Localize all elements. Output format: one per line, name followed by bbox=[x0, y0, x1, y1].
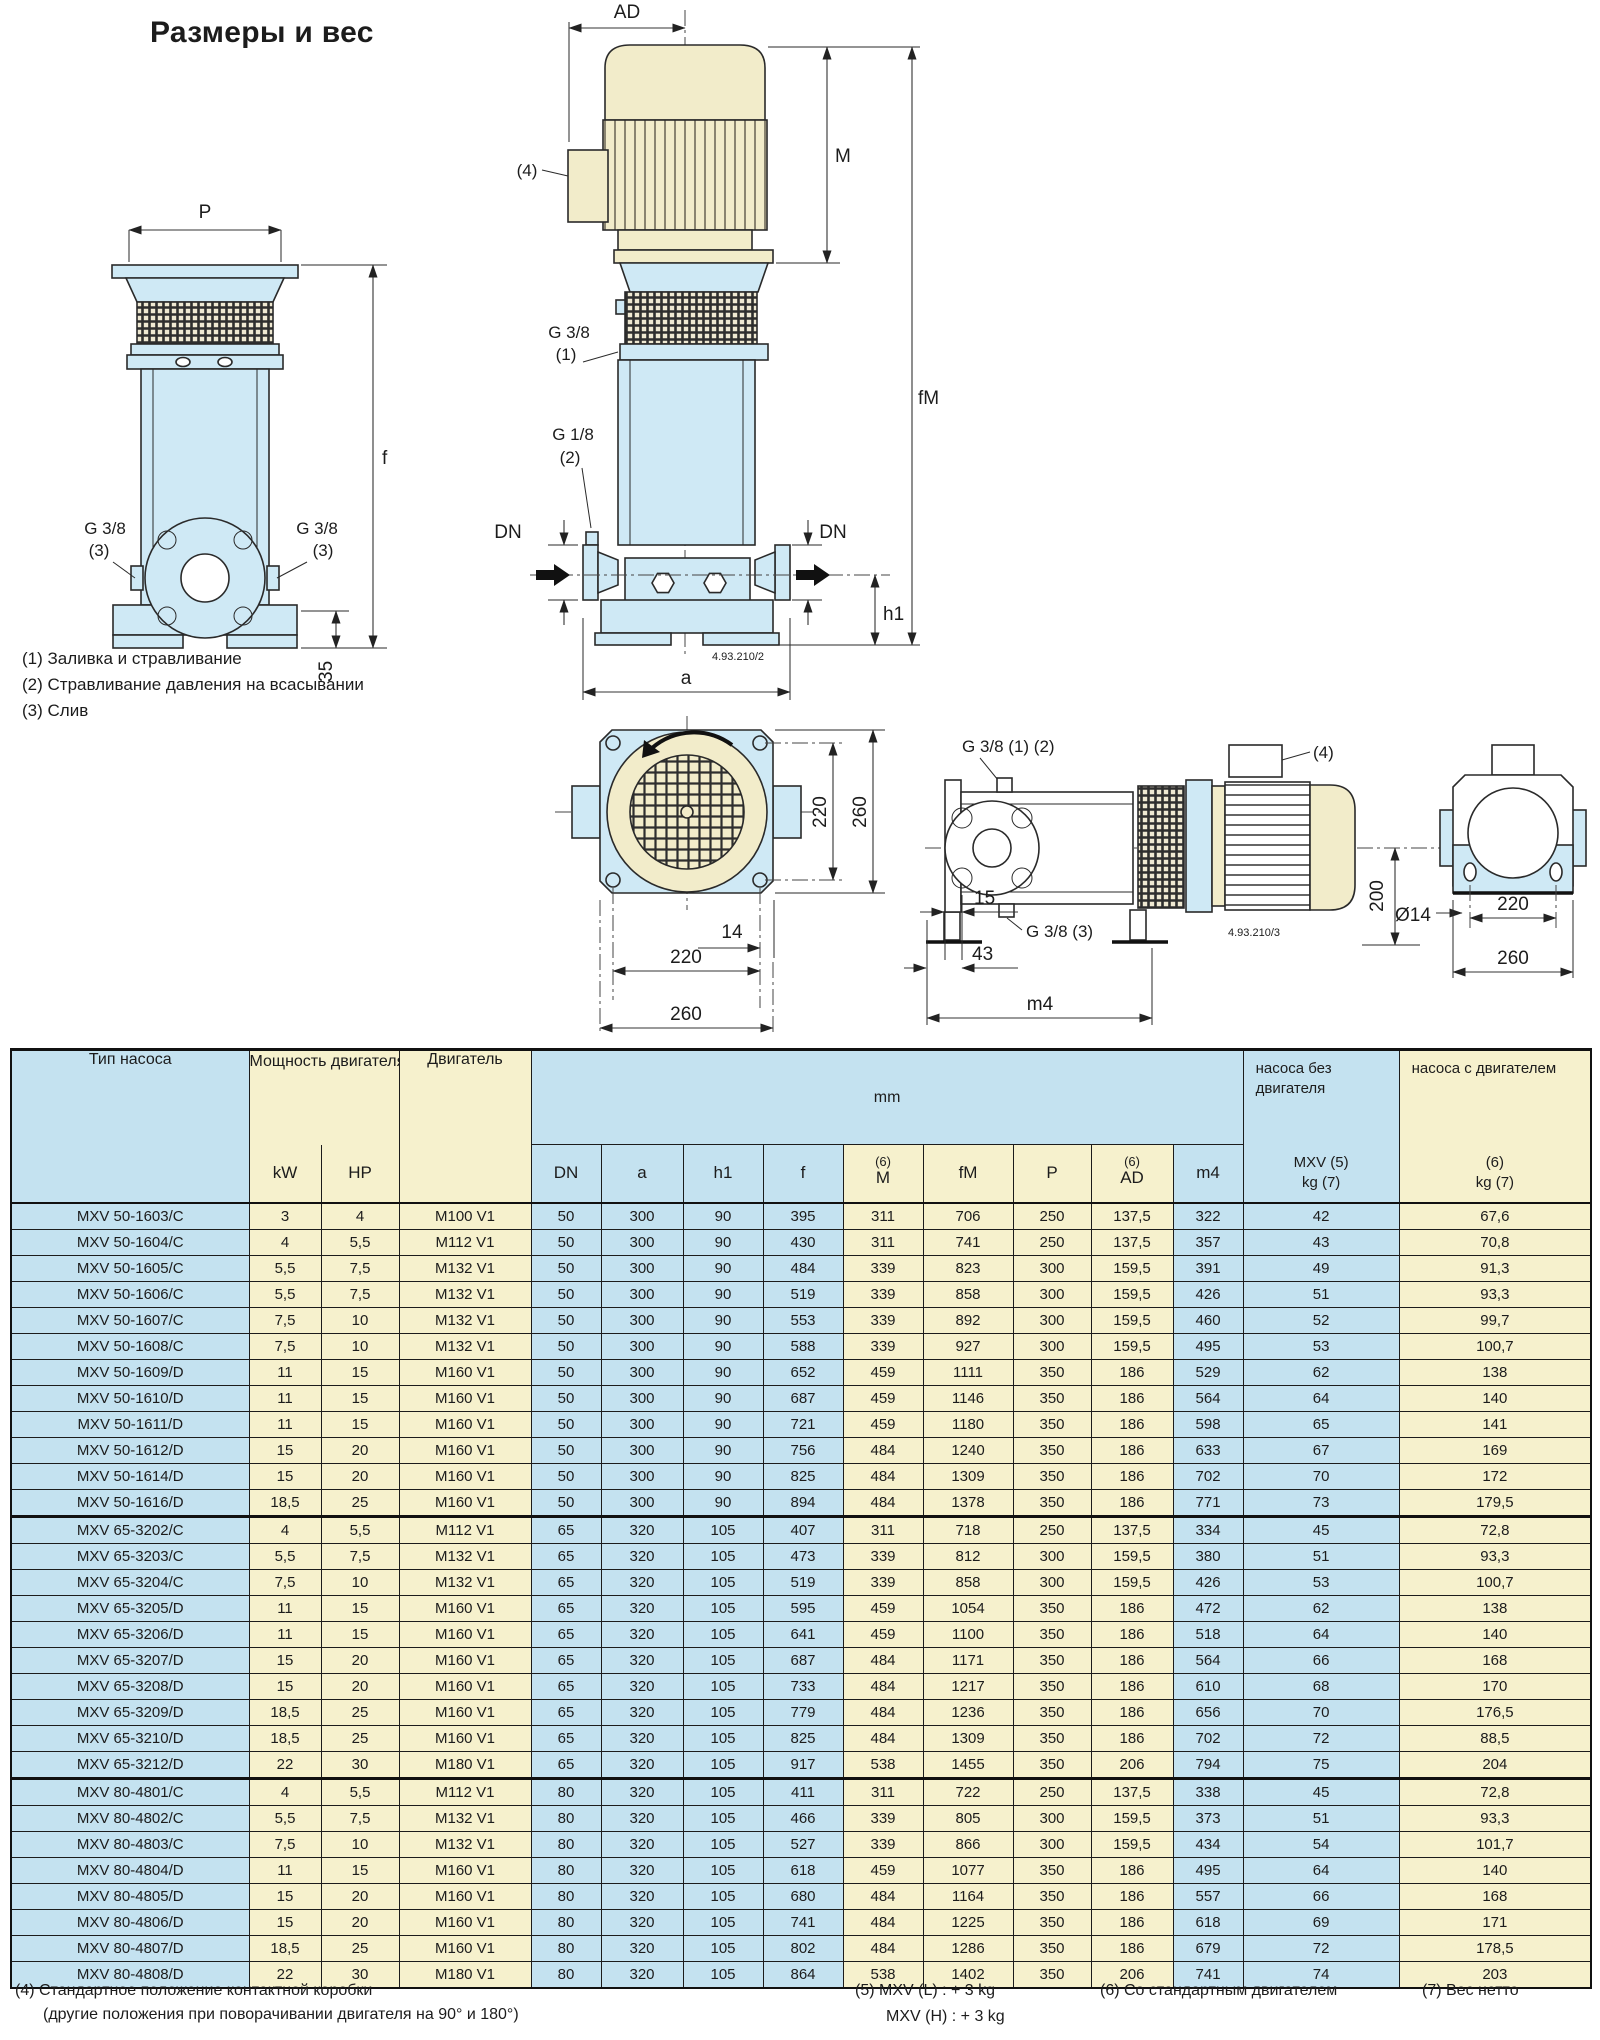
cell-a: 320 bbox=[601, 1621, 683, 1647]
cell-m4: 460 bbox=[1173, 1307, 1243, 1333]
cell-kg1: 45 bbox=[1243, 1778, 1399, 1805]
cell-m: 484 bbox=[843, 1725, 923, 1751]
dim-M: M bbox=[768, 47, 920, 263]
cell-hp: 20 bbox=[321, 1647, 399, 1673]
cell-m: 459 bbox=[843, 1621, 923, 1647]
cell-m4: 679 bbox=[1173, 1935, 1243, 1961]
label-g38-3-right: G 3/8 (3) bbox=[277, 519, 338, 578]
cell-h1: 105 bbox=[683, 1725, 763, 1751]
table-row: MXV 50-1616/D18,525M160 V150300908944841… bbox=[11, 1489, 1591, 1516]
pump-body bbox=[112, 265, 298, 648]
table-row: MXV 65-3203/C5,57,5M132 V165320105473339… bbox=[11, 1543, 1591, 1569]
cell-h1: 105 bbox=[683, 1831, 763, 1857]
cell-a: 320 bbox=[601, 1961, 683, 1988]
cell-kg2: 70,8 bbox=[1399, 1229, 1591, 1255]
cell-fm: 1217 bbox=[923, 1673, 1013, 1699]
cell-type: MXV 65-3202/C bbox=[11, 1516, 249, 1543]
cell-fm: 1236 bbox=[923, 1699, 1013, 1725]
cell-fm: 1054 bbox=[923, 1595, 1013, 1621]
terminal-box-silhouette bbox=[1492, 745, 1534, 775]
cell-kg1: 51 bbox=[1243, 1543, 1399, 1569]
cell-m: 484 bbox=[843, 1673, 923, 1699]
cell-kw: 5,5 bbox=[249, 1281, 321, 1307]
svg-text:220: 220 bbox=[810, 796, 831, 828]
cell-type: MXV 80-4807/D bbox=[11, 1935, 249, 1961]
cell-p: 250 bbox=[1013, 1203, 1091, 1230]
cell-ad: 186 bbox=[1091, 1359, 1173, 1385]
svg-text:m4: m4 bbox=[1027, 994, 1054, 1015]
bolt-hole bbox=[606, 873, 620, 887]
cell-hp: 25 bbox=[321, 1699, 399, 1725]
svg-text:260: 260 bbox=[670, 1004, 702, 1025]
cell-type: MXV 50-1606/C bbox=[11, 1281, 249, 1307]
cell-m4: 426 bbox=[1173, 1281, 1243, 1307]
cell-p: 350 bbox=[1013, 1359, 1091, 1385]
motor-end-cap bbox=[1310, 785, 1355, 910]
header-fm: fM bbox=[923, 1145, 1013, 1203]
svg-text:DN: DN bbox=[819, 522, 846, 543]
cell-fm: 1240 bbox=[923, 1437, 1013, 1463]
cell-kw: 4 bbox=[249, 1229, 321, 1255]
cell-f: 395 bbox=[763, 1203, 843, 1230]
cell-fm: 1286 bbox=[923, 1935, 1013, 1961]
cell-a: 320 bbox=[601, 1543, 683, 1569]
cell-p: 350 bbox=[1013, 1909, 1091, 1935]
cell-motor: M112 V1 bbox=[399, 1229, 531, 1255]
cell-dn: 65 bbox=[531, 1647, 601, 1673]
cell-ad: 186 bbox=[1091, 1725, 1173, 1751]
cell-h1: 90 bbox=[683, 1307, 763, 1333]
cell-p: 300 bbox=[1013, 1333, 1091, 1359]
bolt-hole bbox=[753, 873, 767, 887]
footnote-4-line2: (другие положения при поворачивании двиг… bbox=[43, 2006, 519, 2024]
cell-fm: 722 bbox=[923, 1778, 1013, 1805]
cell-m: 339 bbox=[843, 1281, 923, 1307]
cell-f: 741 bbox=[763, 1909, 843, 1935]
cell-hp: 15 bbox=[321, 1359, 399, 1385]
cell-kg2: 100,7 bbox=[1399, 1333, 1591, 1359]
cell-a: 320 bbox=[601, 1673, 683, 1699]
cell-m: 484 bbox=[843, 1489, 923, 1516]
header-m: (6)M bbox=[843, 1145, 923, 1203]
cell-kg1: 64 bbox=[1243, 1621, 1399, 1647]
cell-m4: 564 bbox=[1173, 1385, 1243, 1411]
cell-kg1: 67 bbox=[1243, 1437, 1399, 1463]
cell-type: MXV 65-3206/D bbox=[11, 1621, 249, 1647]
svg-text:220: 220 bbox=[670, 947, 702, 968]
cell-ad: 137,5 bbox=[1091, 1778, 1173, 1805]
cell-f: 473 bbox=[763, 1543, 843, 1569]
cell-hp: 7,5 bbox=[321, 1543, 399, 1569]
cell-kg1: 72 bbox=[1243, 1935, 1399, 1961]
cell-dn: 50 bbox=[531, 1489, 601, 1516]
cell-m: 339 bbox=[843, 1543, 923, 1569]
cell-h1: 105 bbox=[683, 1699, 763, 1725]
cell-hp: 15 bbox=[321, 1857, 399, 1883]
table-row: MXV 50-1612/D1520M160 V15030090756484124… bbox=[11, 1437, 1591, 1463]
cell-h1: 90 bbox=[683, 1203, 763, 1230]
cell-fm: 812 bbox=[923, 1543, 1013, 1569]
cell-ad: 186 bbox=[1091, 1673, 1173, 1699]
header-motor-power: Мощность двигателя bbox=[249, 1050, 399, 1145]
cell-ad: 159,5 bbox=[1091, 1255, 1173, 1281]
cell-p: 300 bbox=[1013, 1805, 1091, 1831]
cell-fm: 866 bbox=[923, 1831, 1013, 1857]
cell-motor: M160 V1 bbox=[399, 1489, 531, 1516]
cell-motor: M180 V1 bbox=[399, 1961, 531, 1988]
cell-p: 250 bbox=[1013, 1229, 1091, 1255]
cell-kg1: 72 bbox=[1243, 1725, 1399, 1751]
cell-type: MXV 80-4805/D bbox=[11, 1883, 249, 1909]
cell-type: MXV 80-4801/C bbox=[11, 1778, 249, 1805]
cell-kw: 3 bbox=[249, 1203, 321, 1230]
cell-dn: 65 bbox=[531, 1725, 601, 1751]
cell-h1: 90 bbox=[683, 1489, 763, 1516]
cell-f: 407 bbox=[763, 1516, 843, 1543]
cell-ad: 206 bbox=[1091, 1751, 1173, 1778]
cell-dn: 50 bbox=[531, 1463, 601, 1489]
cell-hp: 10 bbox=[321, 1307, 399, 1333]
cell-hp: 20 bbox=[321, 1463, 399, 1489]
cell-p: 350 bbox=[1013, 1857, 1091, 1883]
hex-bolt bbox=[652, 573, 674, 592]
label-g38-12: G 3/8 (1) (2) bbox=[962, 737, 1055, 780]
cell-kg2: 171 bbox=[1399, 1909, 1591, 1935]
cell-h1: 90 bbox=[683, 1281, 763, 1307]
cell-hp: 5,5 bbox=[321, 1778, 399, 1805]
cell-hp: 30 bbox=[321, 1751, 399, 1778]
header-h1: h1 bbox=[683, 1145, 763, 1203]
cell-ad: 159,5 bbox=[1091, 1543, 1173, 1569]
cell-hp: 25 bbox=[321, 1489, 399, 1516]
cell-fm: 805 bbox=[923, 1805, 1013, 1831]
cell-m4: 557 bbox=[1173, 1883, 1243, 1909]
cell-m4: 564 bbox=[1173, 1647, 1243, 1673]
cell-kw: 18,5 bbox=[249, 1725, 321, 1751]
cell-kg1: 65 bbox=[1243, 1411, 1399, 1437]
cell-fm: 858 bbox=[923, 1569, 1013, 1595]
cell-f: 652 bbox=[763, 1359, 843, 1385]
cell-hp: 10 bbox=[321, 1569, 399, 1595]
label-g38-3: G 3/8 (3) bbox=[1007, 918, 1093, 941]
svg-text:200: 200 bbox=[1367, 880, 1388, 912]
end-view bbox=[1440, 745, 1586, 893]
fan-screen bbox=[137, 302, 273, 344]
svg-text:(2): (2) bbox=[560, 448, 581, 467]
cell-fm: 1309 bbox=[923, 1725, 1013, 1751]
cell-f: 733 bbox=[763, 1673, 843, 1699]
cell-fm: 1146 bbox=[923, 1385, 1013, 1411]
cell-motor: M160 V1 bbox=[399, 1935, 531, 1961]
drawing-code: 4.93.210/3 bbox=[1228, 927, 1280, 939]
cell-f: 641 bbox=[763, 1621, 843, 1647]
cell-p: 300 bbox=[1013, 1307, 1091, 1333]
svg-text:fM: fM bbox=[918, 388, 939, 409]
cell-kg2: 72,8 bbox=[1399, 1516, 1591, 1543]
cell-m4: 633 bbox=[1173, 1437, 1243, 1463]
cell-motor: M160 V1 bbox=[399, 1909, 531, 1935]
side-port-left bbox=[572, 786, 600, 838]
cell-fm: 823 bbox=[923, 1255, 1013, 1281]
svg-text:G 1/8: G 1/8 bbox=[552, 425, 594, 444]
cell-h1: 105 bbox=[683, 1647, 763, 1673]
cell-ad: 159,5 bbox=[1091, 1307, 1173, 1333]
cell-kw: 18,5 bbox=[249, 1935, 321, 1961]
cell-kw: 11 bbox=[249, 1857, 321, 1883]
table-row: MXV 65-3205/D1115M160 V16532010559545910… bbox=[11, 1595, 1591, 1621]
cell-a: 300 bbox=[601, 1463, 683, 1489]
cell-h1: 105 bbox=[683, 1673, 763, 1699]
cell-ad: 186 bbox=[1091, 1385, 1173, 1411]
cell-p: 350 bbox=[1013, 1437, 1091, 1463]
bolt-hole bbox=[606, 736, 620, 750]
cell-hp: 7,5 bbox=[321, 1281, 399, 1307]
cell-type: MXV 50-1616/D bbox=[11, 1489, 249, 1516]
cell-m4: 380 bbox=[1173, 1543, 1243, 1569]
cell-kg1: 66 bbox=[1243, 1883, 1399, 1909]
table-row: MXV 65-3210/D18,525M160 V165320105825484… bbox=[11, 1725, 1591, 1751]
cell-hp: 20 bbox=[321, 1437, 399, 1463]
cell-m4: 357 bbox=[1173, 1229, 1243, 1255]
cell-p: 350 bbox=[1013, 1489, 1091, 1516]
flow-arrow-icon bbox=[796, 564, 830, 586]
cell-kw: 5,5 bbox=[249, 1543, 321, 1569]
cell-m: 339 bbox=[843, 1831, 923, 1857]
cell-type: MXV 50-1605/C bbox=[11, 1255, 249, 1281]
cell-h1: 90 bbox=[683, 1255, 763, 1281]
footnote-5-line2: MXV (H) : + 3 kg bbox=[886, 2008, 1005, 2026]
cell-f: 917 bbox=[763, 1751, 843, 1778]
cell-m: 339 bbox=[843, 1333, 923, 1359]
cell-type: MXV 65-3204/C bbox=[11, 1569, 249, 1595]
cell-m: 459 bbox=[843, 1385, 923, 1411]
cell-a: 320 bbox=[601, 1595, 683, 1621]
cell-m: 311 bbox=[843, 1778, 923, 1805]
footnote-6: (6) Со стандартным двигателем bbox=[1100, 1982, 1337, 2000]
cell-motor: M132 V1 bbox=[399, 1255, 531, 1281]
cell-p: 300 bbox=[1013, 1831, 1091, 1857]
cell-f: 595 bbox=[763, 1595, 843, 1621]
cell-kw: 15 bbox=[249, 1909, 321, 1935]
cell-a: 320 bbox=[601, 1935, 683, 1961]
cell-motor: M160 V1 bbox=[399, 1595, 531, 1621]
cell-dn: 80 bbox=[531, 1831, 601, 1857]
cell-kg2: 172 bbox=[1399, 1463, 1591, 1489]
cell-type: MXV 50-1611/D bbox=[11, 1411, 249, 1437]
cell-dn: 65 bbox=[531, 1543, 601, 1569]
cell-m4: 495 bbox=[1173, 1857, 1243, 1883]
pump-group-1: MXV 50-1603/C34M100 V1503009039531170625… bbox=[11, 1203, 1591, 1517]
cell-kg1: 52 bbox=[1243, 1307, 1399, 1333]
cell-dn: 50 bbox=[531, 1229, 601, 1255]
cell-kg2: 93,3 bbox=[1399, 1281, 1591, 1307]
cell-type: MXV 65-3209/D bbox=[11, 1699, 249, 1725]
cell-h1: 105 bbox=[683, 1751, 763, 1778]
cell-h1: 105 bbox=[683, 1961, 763, 1988]
cell-dn: 80 bbox=[531, 1961, 601, 1988]
table-row: MXV 50-1605/C5,57,5M132 V150300904843398… bbox=[11, 1255, 1591, 1281]
vent-port bbox=[616, 300, 625, 314]
header-weight-without-motor: насоса без двигателя MXV (5) kg (7) bbox=[1243, 1050, 1399, 1203]
cell-a: 300 bbox=[601, 1333, 683, 1359]
dim-43: 43 bbox=[904, 920, 1018, 1025]
table-row: MXV 80-4807/D18,525M160 V180320105802484… bbox=[11, 1935, 1591, 1961]
cell-dn: 65 bbox=[531, 1673, 601, 1699]
dim-f: f bbox=[301, 265, 388, 648]
label-g18-2: G 1/8 (2) bbox=[552, 425, 594, 528]
cell-type: MXV 65-3210/D bbox=[11, 1725, 249, 1751]
table-row: MXV 50-1608/C7,510M132 V1503009058833992… bbox=[11, 1333, 1591, 1359]
drain-port bbox=[999, 904, 1014, 917]
cell-type: MXV 50-1609/D bbox=[11, 1359, 249, 1385]
cell-motor: M112 V1 bbox=[399, 1778, 531, 1805]
footnote-4-line1: (4) Стандартное положение контактной кор… bbox=[15, 1982, 372, 2000]
table-row: MXV 80-4801/C45,5M112 V18032010541131172… bbox=[11, 1778, 1591, 1805]
cell-m: 484 bbox=[843, 1699, 923, 1725]
cell-hp: 7,5 bbox=[321, 1805, 399, 1831]
cell-fm: 1180 bbox=[923, 1411, 1013, 1437]
cell-kg2: 168 bbox=[1399, 1647, 1591, 1673]
cell-m4: 495 bbox=[1173, 1333, 1243, 1359]
header-dn: DN bbox=[531, 1145, 601, 1203]
spec-table: Тип насоса Мощность двигателя Двигатель … bbox=[10, 1048, 1592, 1989]
cell-f: 687 bbox=[763, 1647, 843, 1673]
cell-kg1: 64 bbox=[1243, 1385, 1399, 1411]
cell-hp: 5,5 bbox=[321, 1516, 399, 1543]
cell-a: 320 bbox=[601, 1569, 683, 1595]
cell-m: 484 bbox=[843, 1883, 923, 1909]
cell-hp: 20 bbox=[321, 1909, 399, 1935]
cell-ad: 159,5 bbox=[1091, 1281, 1173, 1307]
cell-kg2: 140 bbox=[1399, 1621, 1591, 1647]
cell-ad: 186 bbox=[1091, 1437, 1173, 1463]
cell-kg2: 140 bbox=[1399, 1385, 1591, 1411]
svg-text:Ø14: Ø14 bbox=[1395, 905, 1431, 926]
cell-m4: 702 bbox=[1173, 1725, 1243, 1751]
cell-motor: M160 V1 bbox=[399, 1437, 531, 1463]
cell-p: 350 bbox=[1013, 1385, 1091, 1411]
legend-notes: (1) Заливка и стравливание (2) Стравлива… bbox=[22, 646, 364, 724]
header-ad: (6)AD bbox=[1091, 1145, 1173, 1203]
cell-type: MXV 50-1614/D bbox=[11, 1463, 249, 1489]
cell-a: 300 bbox=[601, 1359, 683, 1385]
cell-m: 484 bbox=[843, 1935, 923, 1961]
cell-f: 411 bbox=[763, 1778, 843, 1805]
base-bolt-hole bbox=[1550, 863, 1562, 881]
cell-kg1: 62 bbox=[1243, 1359, 1399, 1385]
cell-f: 894 bbox=[763, 1489, 843, 1516]
cell-ad: 186 bbox=[1091, 1411, 1173, 1437]
bolt-hole bbox=[753, 736, 767, 750]
cell-type: MXV 65-3208/D bbox=[11, 1673, 249, 1699]
cell-h1: 105 bbox=[683, 1569, 763, 1595]
cell-dn: 80 bbox=[531, 1805, 601, 1831]
cell-motor: M160 V1 bbox=[399, 1883, 531, 1909]
cell-f: 553 bbox=[763, 1307, 843, 1333]
fan-screen bbox=[625, 292, 757, 344]
delivery-flange bbox=[775, 545, 790, 600]
header-mm: mm bbox=[531, 1050, 1243, 1145]
cell-a: 320 bbox=[601, 1909, 683, 1935]
cell-a: 300 bbox=[601, 1281, 683, 1307]
cell-m4: 391 bbox=[1173, 1255, 1243, 1281]
cell-m4: 338 bbox=[1173, 1778, 1243, 1805]
pump-group-2: MXV 65-3202/C45,5M112 V16532010540731171… bbox=[11, 1516, 1591, 1778]
motor-ribs bbox=[603, 120, 767, 230]
cell-kg2: 138 bbox=[1399, 1359, 1591, 1385]
cell-ad: 186 bbox=[1091, 1647, 1173, 1673]
cell-f: 519 bbox=[763, 1569, 843, 1595]
cell-kw: 15 bbox=[249, 1647, 321, 1673]
cell-m: 459 bbox=[843, 1595, 923, 1621]
table-row: MXV 65-3207/D1520M160 V16532010568748411… bbox=[11, 1647, 1591, 1673]
legend-note-3: (3) Слив bbox=[22, 698, 364, 724]
cell-a: 300 bbox=[601, 1411, 683, 1437]
cell-p: 350 bbox=[1013, 1595, 1091, 1621]
cell-kg2: 179,5 bbox=[1399, 1489, 1591, 1516]
label-4: (4) bbox=[1282, 743, 1334, 762]
cell-p: 350 bbox=[1013, 1725, 1091, 1751]
svg-text:220: 220 bbox=[1497, 894, 1529, 915]
cell-ad: 159,5 bbox=[1091, 1569, 1173, 1595]
cell-kw: 7,5 bbox=[249, 1569, 321, 1595]
cell-kg2: 204 bbox=[1399, 1751, 1591, 1778]
cell-h1: 105 bbox=[683, 1883, 763, 1909]
cell-kw: 11 bbox=[249, 1621, 321, 1647]
cell-dn: 80 bbox=[531, 1778, 601, 1805]
cell-f: 680 bbox=[763, 1883, 843, 1909]
cell-hp: 20 bbox=[321, 1883, 399, 1909]
cell-f: 527 bbox=[763, 1831, 843, 1857]
header-motor: Двигатель bbox=[399, 1050, 531, 1203]
legend-note-2: (2) Стравливание давления на всасывании bbox=[22, 672, 364, 698]
cell-h1: 105 bbox=[683, 1805, 763, 1831]
cell-ad: 186 bbox=[1091, 1883, 1173, 1909]
cell-kg1: 49 bbox=[1243, 1255, 1399, 1281]
cell-fm: 706 bbox=[923, 1203, 1013, 1230]
side-port-right bbox=[773, 786, 801, 838]
cell-hp: 25 bbox=[321, 1725, 399, 1751]
cell-p: 350 bbox=[1013, 1935, 1091, 1961]
cell-fm: 892 bbox=[923, 1307, 1013, 1333]
cell-hp: 25 bbox=[321, 1935, 399, 1961]
cell-motor: M132 V1 bbox=[399, 1543, 531, 1569]
cell-m: 484 bbox=[843, 1909, 923, 1935]
cell-ad: 186 bbox=[1091, 1595, 1173, 1621]
cell-kw: 18,5 bbox=[249, 1489, 321, 1516]
cell-motor: M132 V1 bbox=[399, 1805, 531, 1831]
cell-kw: 15 bbox=[249, 1673, 321, 1699]
cell-kg1: 75 bbox=[1243, 1751, 1399, 1778]
cell-type: MXV 80-4803/C bbox=[11, 1831, 249, 1857]
svg-text:(3): (3) bbox=[313, 541, 334, 560]
cell-f: 430 bbox=[763, 1229, 843, 1255]
header-f: f bbox=[763, 1145, 843, 1203]
cell-m4: 702 bbox=[1173, 1463, 1243, 1489]
cell-motor: M160 V1 bbox=[399, 1411, 531, 1437]
cell-kw: 11 bbox=[249, 1385, 321, 1411]
cell-kg2: 170 bbox=[1399, 1673, 1591, 1699]
table-row: MXV 65-3204/C7,510M132 V1653201055193398… bbox=[11, 1569, 1591, 1595]
cell-h1: 90 bbox=[683, 1385, 763, 1411]
cell-kg1: 45 bbox=[1243, 1516, 1399, 1543]
cell-dn: 65 bbox=[531, 1569, 601, 1595]
drawing-pump-horizontal: G 3/8 (1) (2) bbox=[900, 540, 1600, 1040]
cell-type: MXV 50-1607/C bbox=[11, 1307, 249, 1333]
cell-a: 320 bbox=[601, 1805, 683, 1831]
cell-a: 300 bbox=[601, 1385, 683, 1411]
cell-f: 687 bbox=[763, 1385, 843, 1411]
